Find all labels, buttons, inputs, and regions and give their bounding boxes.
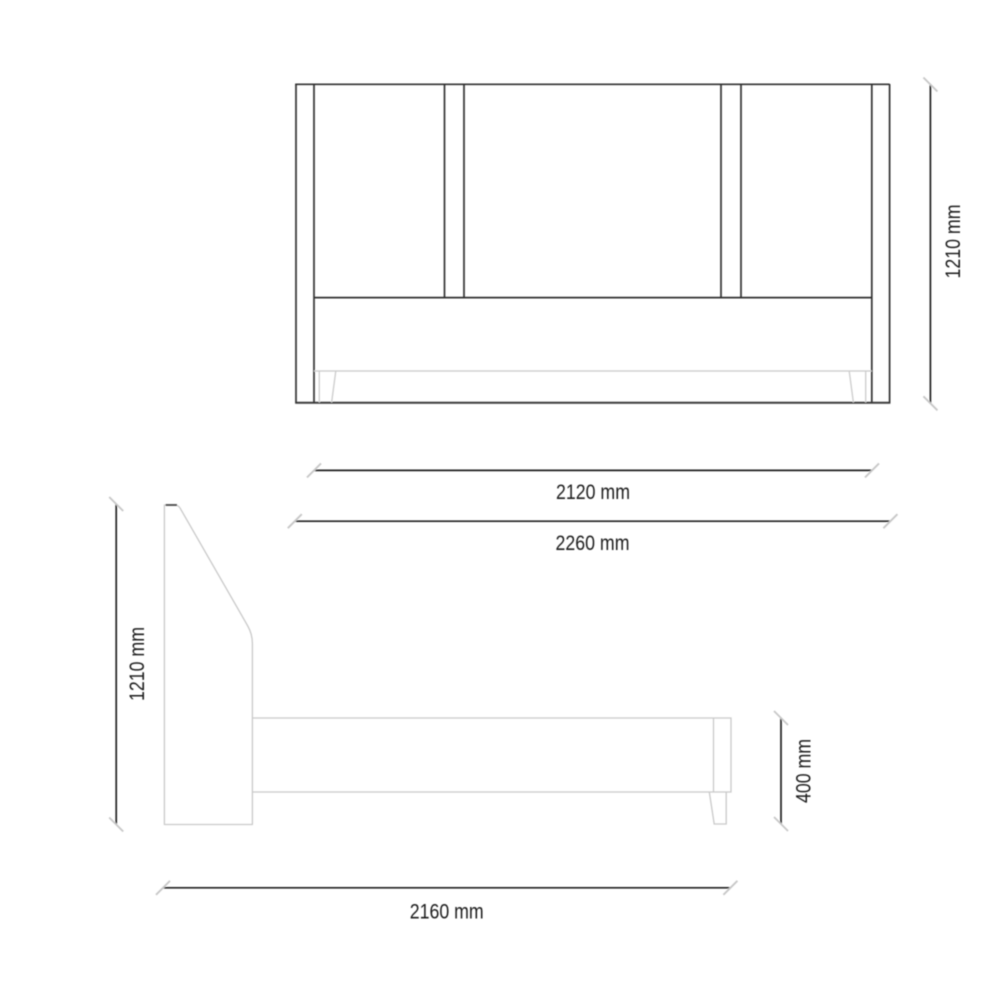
svg-text:2160 mm: 2160 mm <box>410 900 484 924</box>
svg-text:2120 mm: 2120 mm <box>556 481 630 505</box>
svg-text:1210 mm: 1210 mm <box>126 627 150 701</box>
svg-text:2260 mm: 2260 mm <box>556 532 630 556</box>
svg-text:1210 mm: 1210 mm <box>942 205 966 279</box>
svg-text:400 mm: 400 mm <box>792 739 816 803</box>
